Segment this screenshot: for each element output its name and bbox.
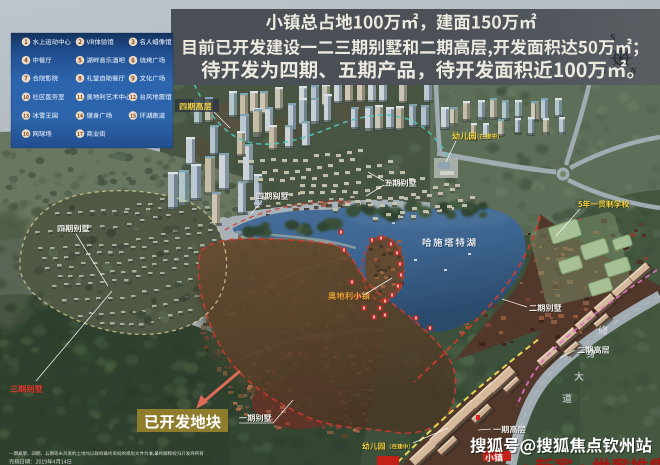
svg-text:S: S: [610, 33, 616, 44]
